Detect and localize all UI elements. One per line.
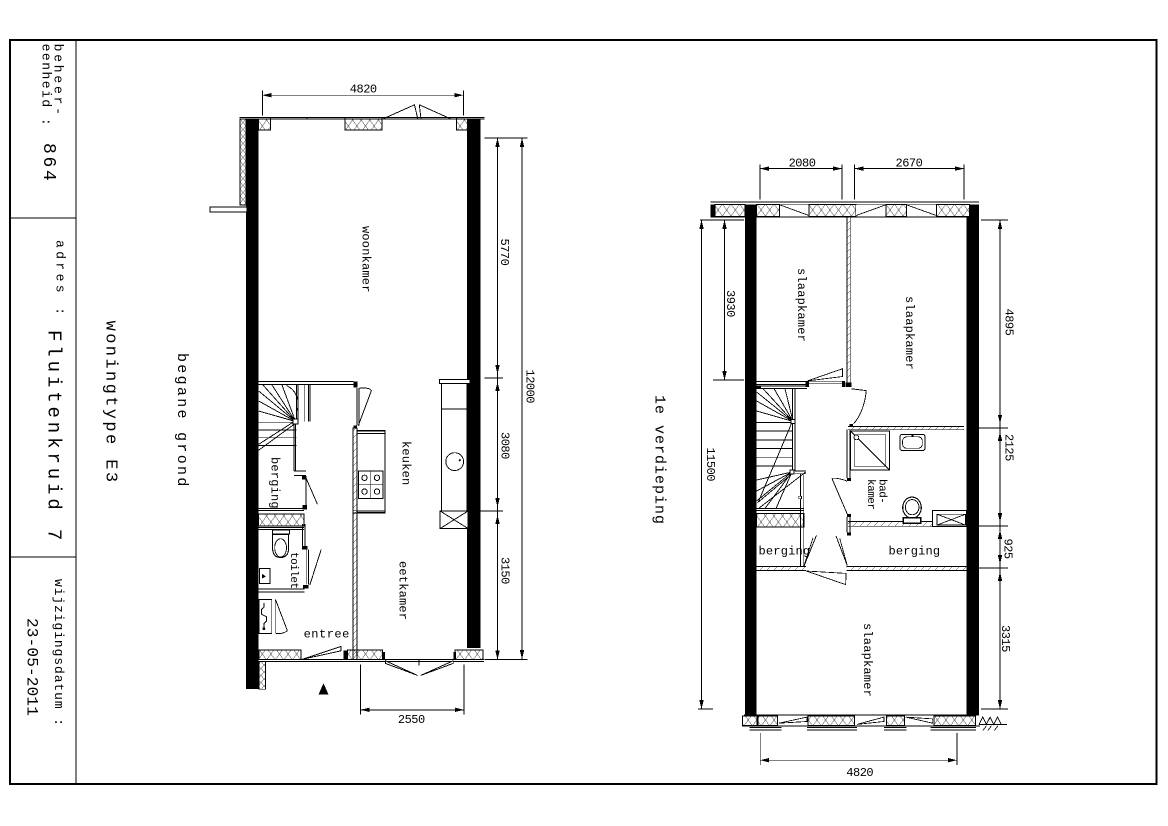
svg-text:woningtype E3: woningtype E3 [101, 321, 120, 485]
svg-text:2125: 2125 [1002, 434, 1016, 461]
svg-text:Fluitenkruid 7: Fluitenkruid 7 [43, 330, 65, 544]
svg-text:kamer: kamer [864, 479, 876, 510]
svg-text:3315: 3315 [998, 625, 1012, 652]
svg-text:5770: 5770 [497, 239, 511, 266]
svg-text:11500: 11500 [703, 448, 717, 482]
svg-text:slaapkamer: slaapkamer [860, 623, 874, 697]
svg-text:2080: 2080 [789, 157, 816, 171]
svg-text:eenheid :: eenheid : [39, 44, 54, 128]
svg-text:864: 864 [38, 143, 58, 184]
svg-text:3080: 3080 [498, 432, 512, 459]
svg-text:slaapkamer: slaapkamer [794, 268, 808, 342]
svg-text:berging: berging [268, 457, 282, 509]
svg-text:4895: 4895 [1002, 309, 1016, 336]
svg-text:4820: 4820 [846, 766, 873, 780]
svg-text:berging: berging [889, 545, 941, 559]
svg-text:berging: berging [759, 545, 811, 559]
svg-text:eetkamer: eetkamer [396, 561, 410, 620]
svg-text:entree: entree [304, 628, 350, 642]
svg-text:toilet: toilet [287, 552, 299, 589]
svg-text:1e verdieping: 1e verdieping [651, 395, 668, 525]
svg-text:3930: 3930 [723, 290, 737, 317]
svg-text:adres :: adres : [53, 240, 68, 318]
svg-text:keuken: keuken [399, 441, 413, 485]
svg-text:925: 925 [1001, 539, 1015, 559]
svg-text:bad-: bad- [876, 479, 888, 503]
svg-text:begane grond: begane grond [173, 353, 190, 489]
svg-text:wijzigingsdatum :: wijzigingsdatum : [51, 579, 66, 727]
svg-text:23-05-2011: 23-05-2011 [23, 618, 41, 716]
svg-text:2670: 2670 [896, 157, 923, 171]
svg-text:3150: 3150 [498, 557, 512, 584]
svg-text:slaapkamer: slaapkamer [902, 296, 916, 370]
svg-text:4820: 4820 [350, 82, 377, 96]
svg-text:12000: 12000 [523, 370, 537, 404]
svg-text:woonkamer: woonkamer [359, 226, 373, 293]
svg-text:2550: 2550 [398, 713, 425, 727]
